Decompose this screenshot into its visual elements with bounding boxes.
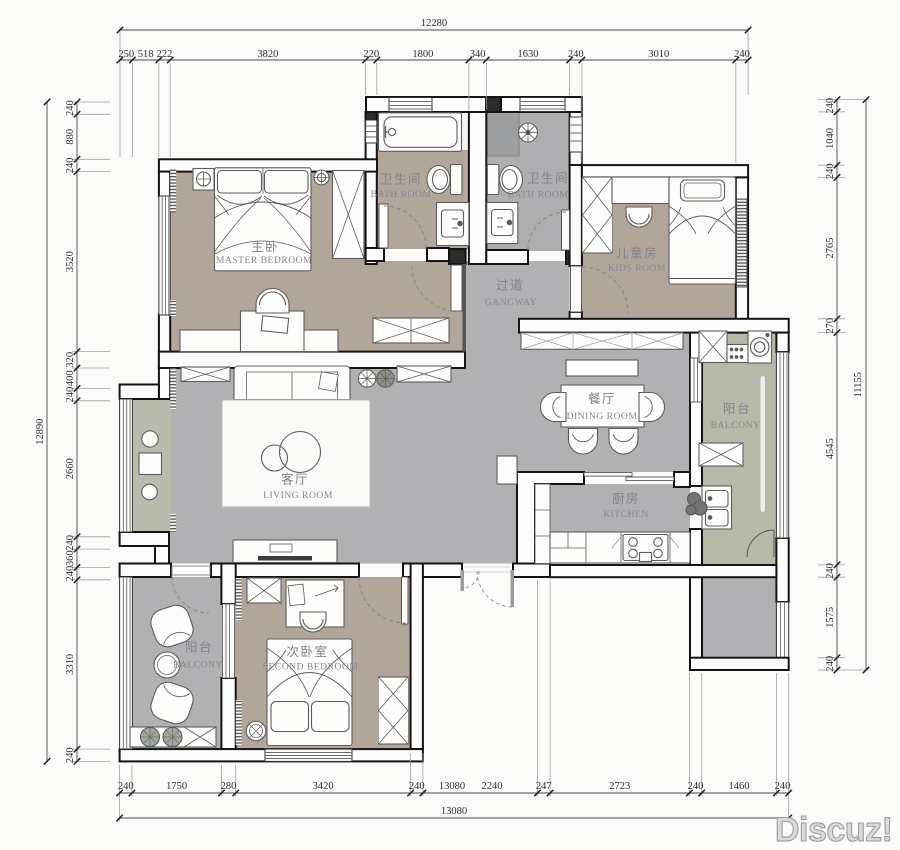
svg-text:BALCONY: BALCONY <box>173 660 223 671</box>
svg-text:13080: 13080 <box>441 806 467 817</box>
svg-text:SECOND BEDROOM: SECOND BEDROOM <box>263 662 359 673</box>
svg-text:1750: 1750 <box>166 781 187 792</box>
svg-text:280: 280 <box>221 781 237 792</box>
svg-text:GANGWAY: GANGWAY <box>485 297 537 308</box>
svg-text:阳台: 阳台 <box>723 401 751 416</box>
svg-text:250: 250 <box>118 49 134 60</box>
svg-text:1460: 1460 <box>729 781 750 792</box>
svg-text:BATH ROOM: BATH ROOM <box>508 190 569 201</box>
svg-text:240: 240 <box>825 163 836 179</box>
svg-text:2240: 2240 <box>482 781 503 792</box>
svg-text:220: 220 <box>363 49 379 60</box>
svg-text:240: 240 <box>65 158 76 174</box>
svg-text:340: 340 <box>470 49 486 60</box>
svg-text:1040: 1040 <box>825 128 836 149</box>
svg-text:1575: 1575 <box>825 607 836 628</box>
svg-text:240: 240 <box>65 387 76 403</box>
svg-text:247: 247 <box>536 781 552 792</box>
svg-text:阳台: 阳台 <box>185 640 213 655</box>
svg-text:2723: 2723 <box>609 781 630 792</box>
svg-text:240: 240 <box>65 747 76 763</box>
svg-text:222: 222 <box>157 49 173 60</box>
svg-text:240: 240 <box>775 781 791 792</box>
svg-text:12890: 12890 <box>35 419 46 445</box>
svg-text:360: 360 <box>65 550 76 566</box>
svg-text:次卧室: 次卧室 <box>286 644 328 659</box>
svg-text:3010: 3010 <box>648 49 669 60</box>
svg-text:240: 240 <box>65 100 76 116</box>
svg-text:2765: 2765 <box>825 238 836 259</box>
svg-text:13080: 13080 <box>439 781 465 792</box>
svg-text:240: 240 <box>568 49 584 60</box>
svg-text:518: 518 <box>138 49 154 60</box>
svg-text:320: 320 <box>65 352 76 368</box>
svg-text:240: 240 <box>65 535 76 551</box>
svg-text:2660: 2660 <box>65 458 76 479</box>
svg-text:880: 880 <box>65 129 76 145</box>
svg-text:KIDS ROOM: KIDS ROOM <box>608 263 666 274</box>
svg-text:卫生间: 卫生间 <box>380 173 422 187</box>
svg-text:240: 240 <box>825 563 836 579</box>
svg-text:BATH ROOM: BATH ROOM <box>371 189 432 200</box>
svg-text:240: 240 <box>688 781 704 792</box>
svg-text:240: 240 <box>825 98 836 114</box>
svg-text:厨房: 厨房 <box>612 491 640 506</box>
svg-text:1800: 1800 <box>412 49 433 60</box>
svg-text:3520: 3520 <box>65 251 76 272</box>
svg-text:客厅: 客厅 <box>281 472 309 487</box>
svg-text:1630: 1630 <box>518 49 539 60</box>
svg-text:3310: 3310 <box>65 654 76 675</box>
svg-text:240: 240 <box>118 781 134 792</box>
svg-text:240: 240 <box>734 49 750 60</box>
svg-text:MASTER BEDROOM: MASTER BEDROOM <box>216 255 312 266</box>
svg-text:240: 240 <box>65 566 76 582</box>
svg-text:过道: 过道 <box>496 279 524 293</box>
svg-text:270: 270 <box>825 318 836 334</box>
svg-text:LIVING ROOM: LIVING ROOM <box>263 490 333 501</box>
svg-text:12280: 12280 <box>421 18 447 29</box>
svg-text:240: 240 <box>825 656 836 672</box>
svg-text:儿童房: 儿童房 <box>616 246 658 261</box>
svg-text:400: 400 <box>65 370 76 386</box>
svg-text:3820: 3820 <box>257 49 278 60</box>
svg-text:KITCHEN: KITCHEN <box>603 509 649 520</box>
svg-text:BALCONY: BALCONY <box>711 420 761 431</box>
svg-text:4545: 4545 <box>825 438 836 459</box>
svg-text:卫生间: 卫生间 <box>527 172 569 186</box>
svg-text:Discuz!: Discuz! <box>775 811 892 849</box>
svg-text:餐厅: 餐厅 <box>588 391 616 406</box>
svg-text:主卧: 主卧 <box>251 240 279 254</box>
svg-text:11155: 11155 <box>853 372 864 397</box>
svg-text:3420: 3420 <box>313 781 334 792</box>
svg-text:240: 240 <box>409 781 425 792</box>
svg-text:DINING ROOM: DINING ROOM <box>567 411 638 422</box>
